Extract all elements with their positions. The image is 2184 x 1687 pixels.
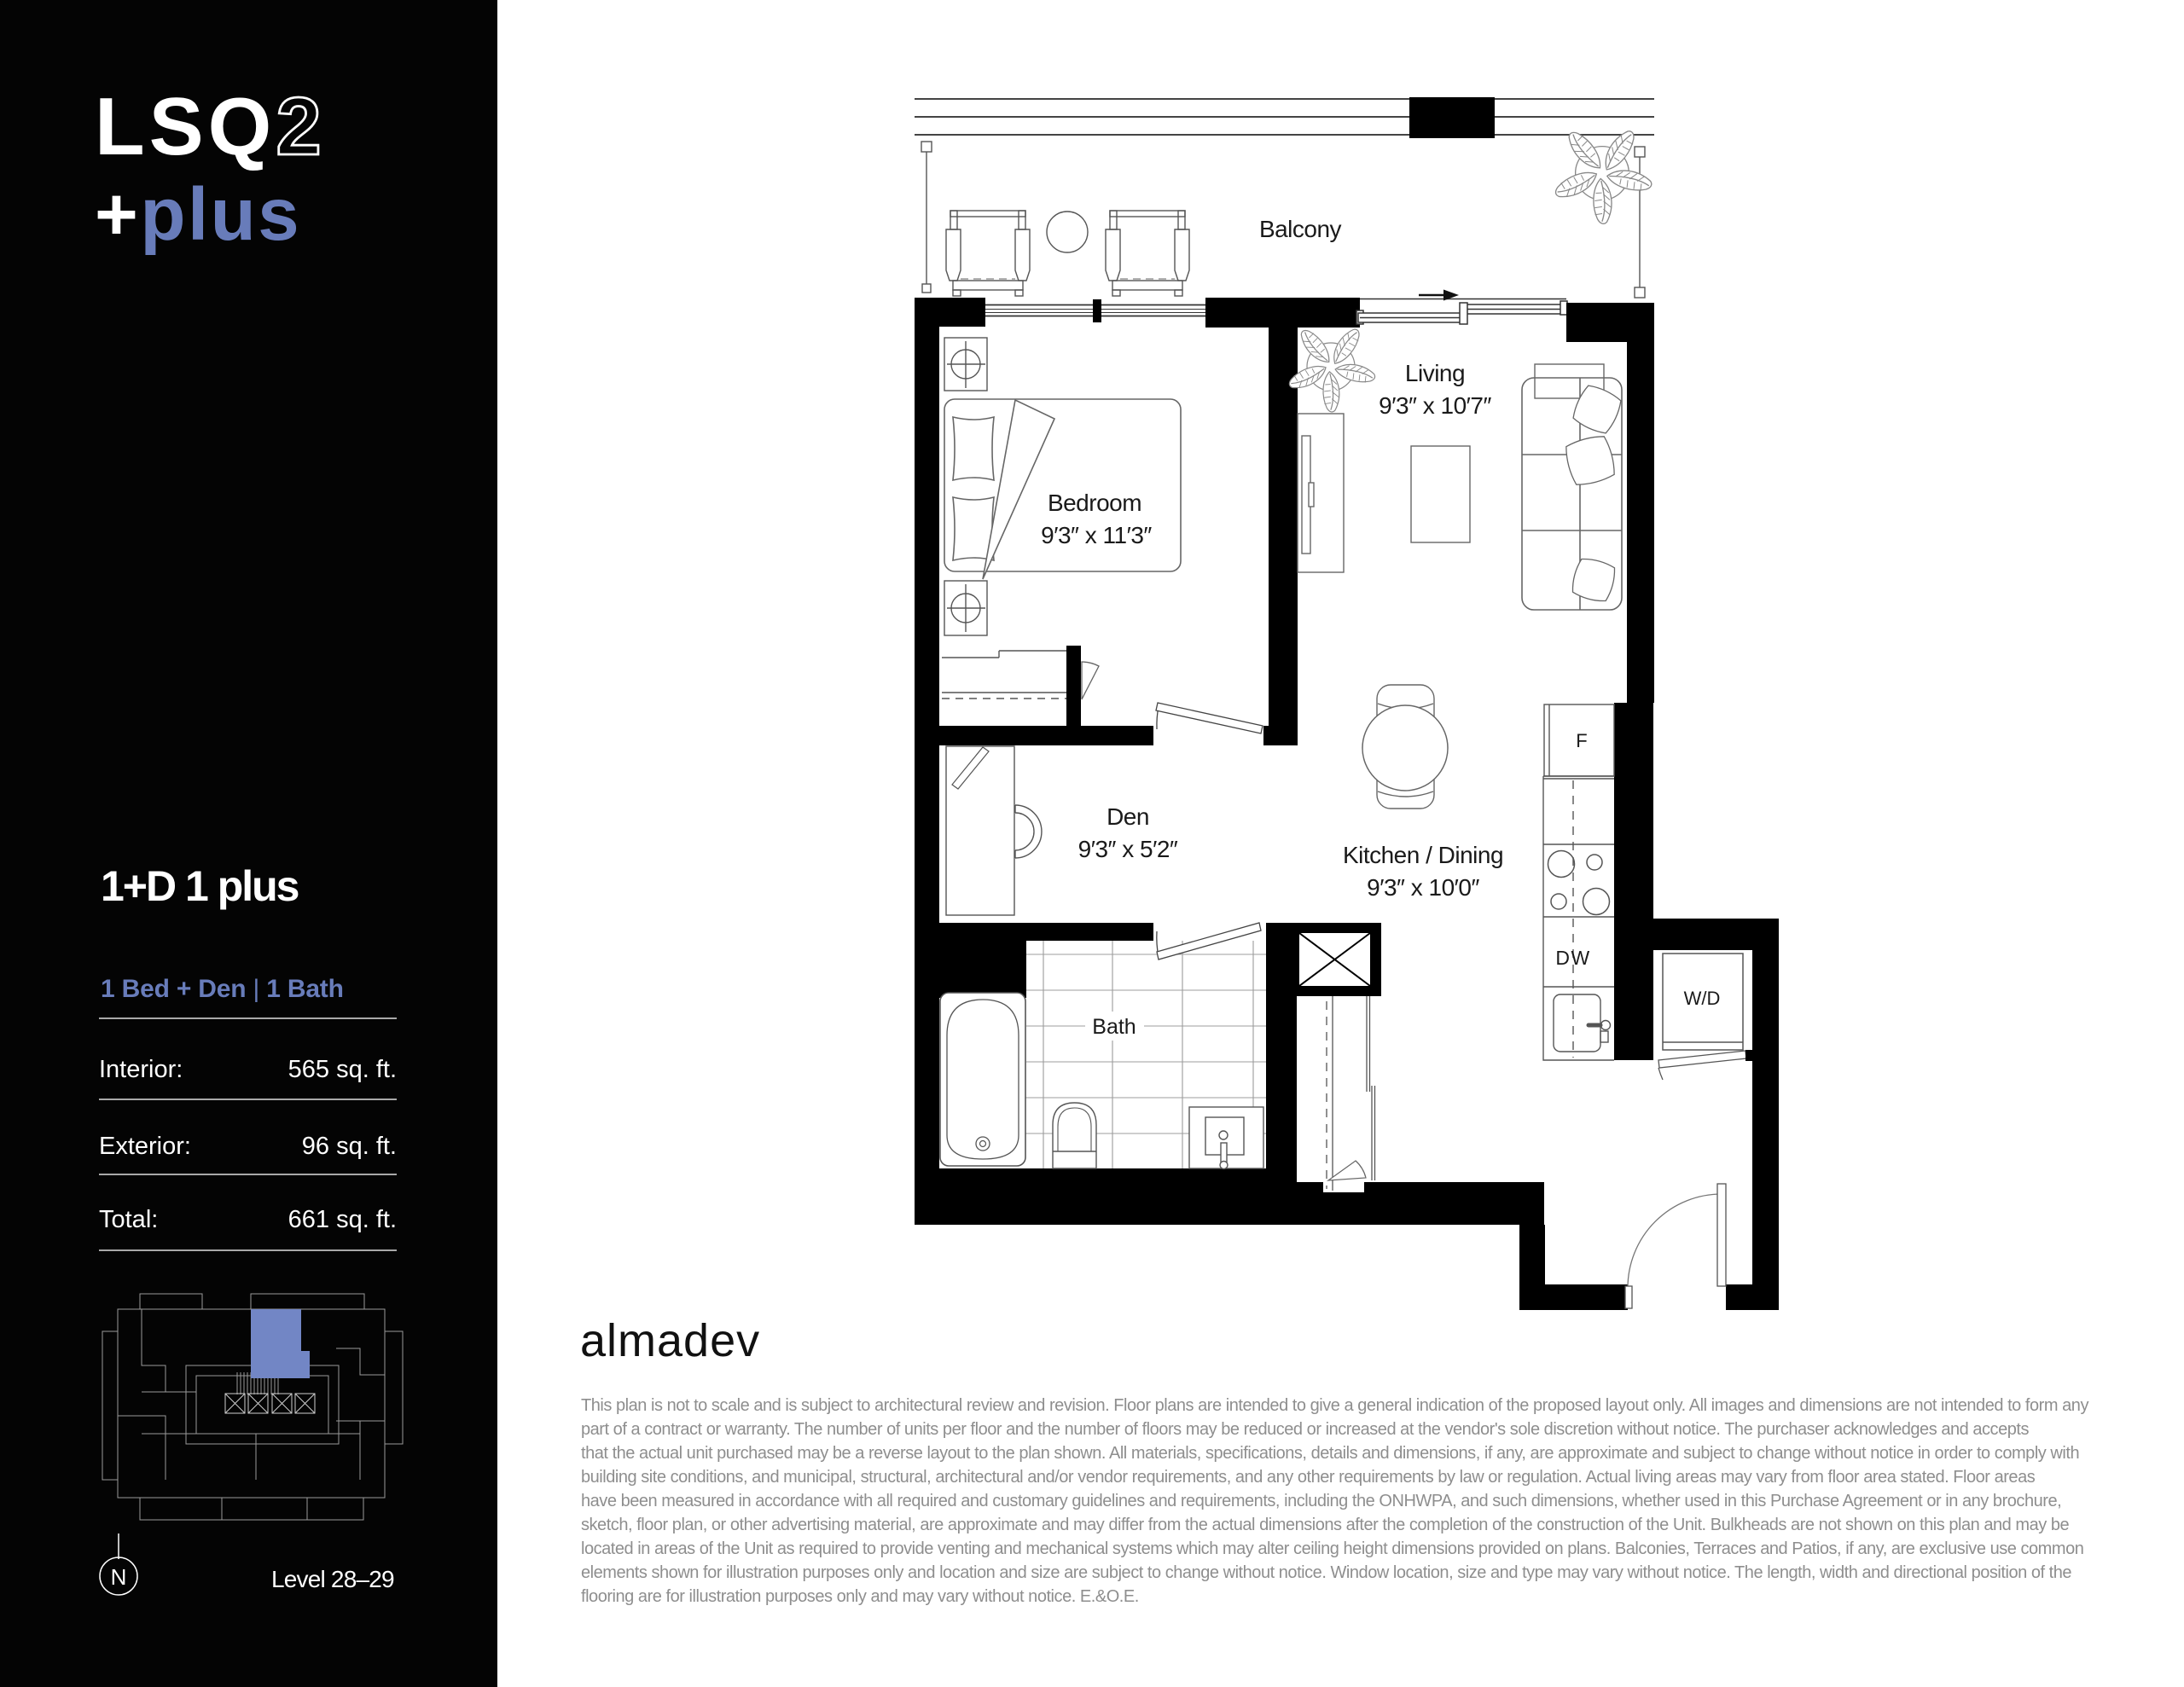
svg-text:9′3″ x 5′2″: 9′3″ x 5′2″ xyxy=(1078,836,1178,862)
svg-text:Den: Den xyxy=(1107,803,1149,830)
svg-text:Bedroom: Bedroom xyxy=(1048,490,1141,516)
svg-text:Balcony: Balcony xyxy=(1259,216,1342,242)
svg-text:DW: DW xyxy=(1555,947,1590,969)
svg-text:W/D: W/D xyxy=(1684,988,1721,1009)
svg-text:9′3″ x 10′7″: 9′3″ x 10′7″ xyxy=(1379,392,1491,419)
svg-text:9′3″ x 10′0″: 9′3″ x 10′0″ xyxy=(1367,874,1479,901)
svg-text:F: F xyxy=(1576,730,1587,751)
svg-text:9′3″ x 11′3″: 9′3″ x 11′3″ xyxy=(1041,522,1152,548)
svg-text:Kitchen / Dining: Kitchen / Dining xyxy=(1343,842,1503,868)
svg-text:Living: Living xyxy=(1405,360,1465,386)
svg-text:Bath: Bath xyxy=(1092,1015,1136,1039)
